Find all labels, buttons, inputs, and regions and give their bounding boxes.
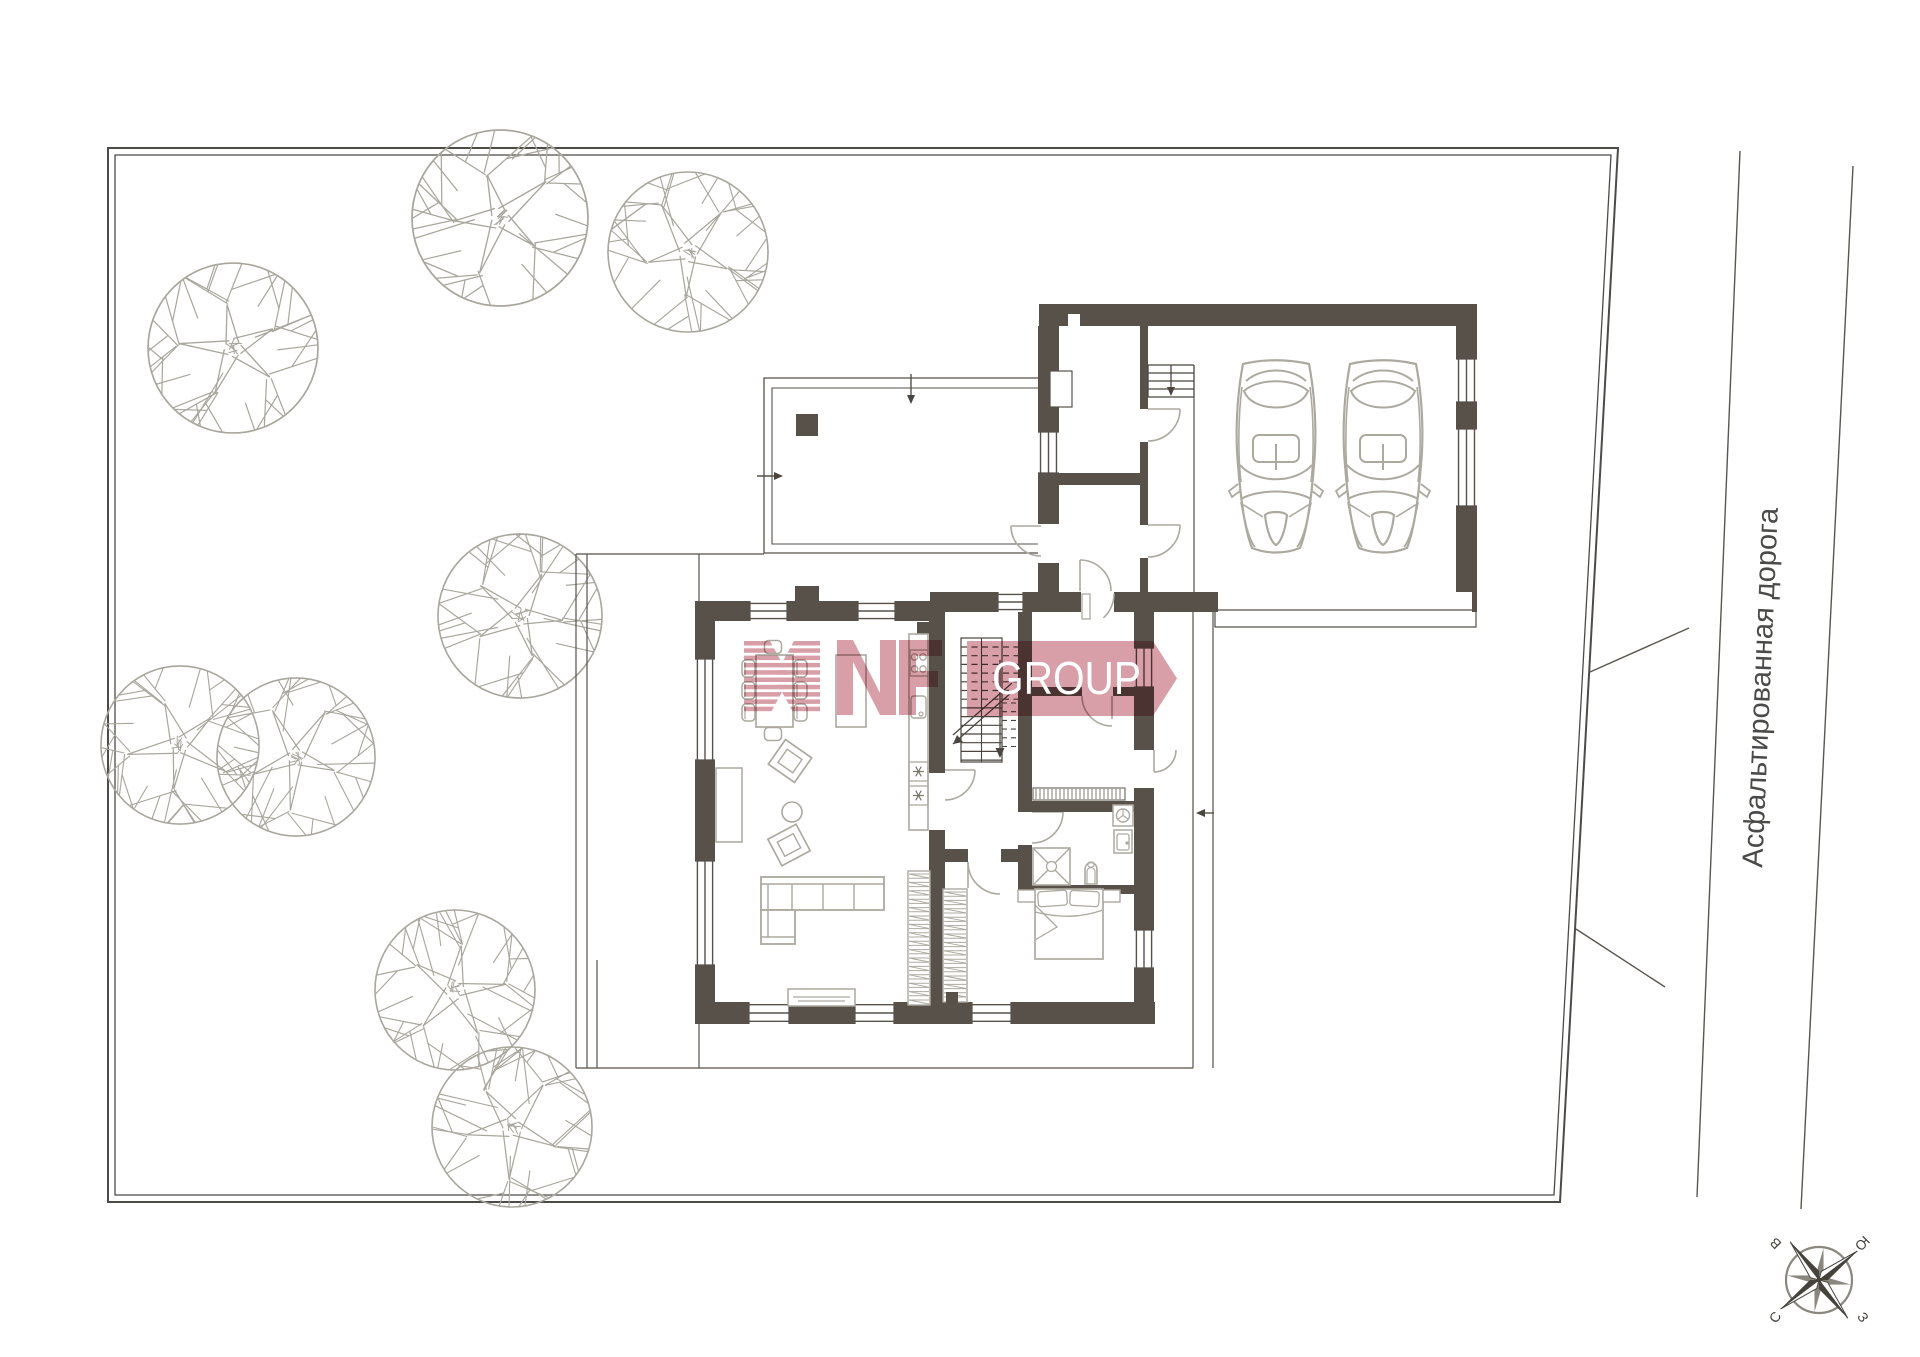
- svg-text:GROUP: GROUP: [992, 652, 1141, 704]
